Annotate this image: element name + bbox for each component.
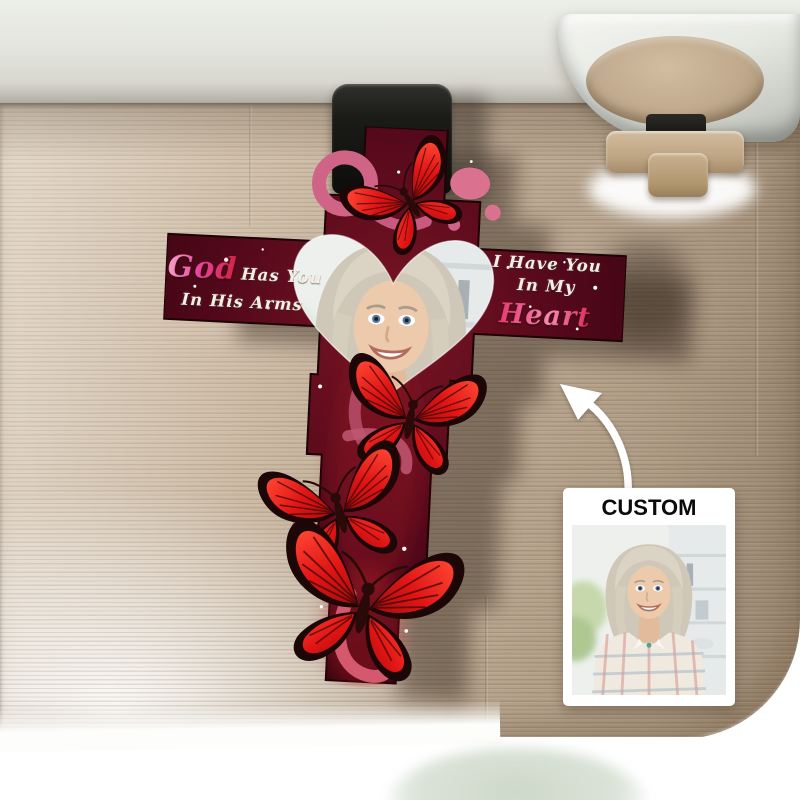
- accent-word-god: God: [167, 249, 238, 287]
- mount-pad: [586, 36, 764, 126]
- right-arm-text: I Have You In My Heart: [469, 250, 623, 338]
- latch-knob: [648, 153, 708, 197]
- custom-photo-image: [572, 525, 726, 695]
- accent-word-heart: Heart: [498, 296, 592, 337]
- visor-bottom-edge-highlight: [0, 700, 500, 753]
- car-interior-scene: GodHas You In His Arms I Have You In My …: [0, 0, 800, 800]
- custom-photo-card: CUSTOM PHOTO: [563, 488, 735, 706]
- left-arm-line1: Has You: [241, 264, 324, 287]
- arrow-icon: [546, 376, 678, 506]
- visor-mount-housing: [552, 10, 800, 225]
- left-arm-text: GodHas You In His Arms: [166, 247, 321, 317]
